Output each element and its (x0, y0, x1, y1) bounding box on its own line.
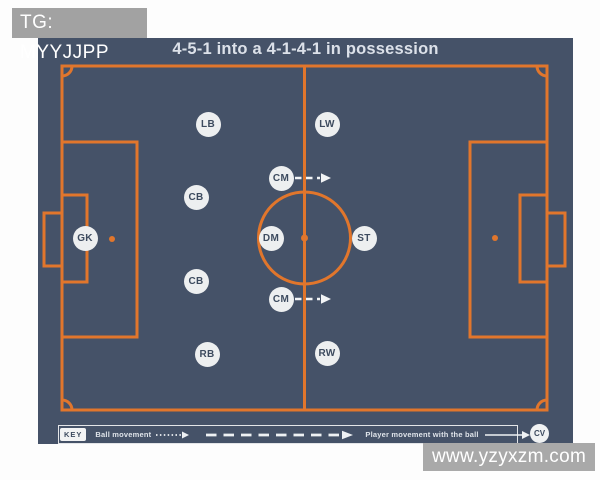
left-goal (44, 213, 62, 266)
player-badge-dm-7: DM (259, 226, 284, 251)
right-goal (547, 213, 565, 266)
player-badge-cm-8: CM (269, 287, 294, 312)
player-badge-cb-3: CB (184, 269, 209, 294)
player-movement-arrow (294, 172, 334, 184)
player-badge-rw-9: RW (315, 341, 340, 366)
solid-arrow-icon (484, 430, 531, 440)
page: TG: MYYJJPP 4-5-1 into a 4-1-4-1 in poss… (0, 0, 600, 480)
key-chip: KEY (60, 428, 86, 441)
player-movement-arrow (294, 293, 334, 305)
player-badge-st-10: ST (352, 226, 377, 251)
player-badge-lw-5: LW (315, 112, 340, 137)
player-badge-cm-6: CM (269, 166, 294, 191)
dashed-arrow-icon (205, 430, 355, 440)
center-spot (301, 235, 308, 242)
right-penalty-area (470, 142, 547, 337)
right-penalty-spot (492, 235, 498, 241)
player-badge-gk-0: GK (73, 226, 98, 251)
player-badge-lb-1: LB (196, 112, 221, 137)
tag-label: TG: MYYJJPP (12, 8, 147, 38)
key-legend-bar: KEY Ball movement Player movement with t… (58, 425, 518, 444)
ball-movement-label: Ball movement (95, 430, 151, 439)
dotted-arrow-icon (155, 430, 191, 440)
player-badge-cb-2: CB (184, 185, 209, 210)
player-movement-label: Player movement with the ball (365, 430, 478, 439)
cv-logo-badge: CV (530, 424, 549, 443)
player-badge-rb-4: RB (195, 342, 220, 367)
right-six-yard-box (520, 195, 547, 282)
diagram-title: 4-5-1 into a 4-1-4-1 in possession (38, 40, 573, 59)
watermark: www.yzyxzm.com (423, 443, 595, 471)
left-penalty-spot (109, 236, 115, 242)
